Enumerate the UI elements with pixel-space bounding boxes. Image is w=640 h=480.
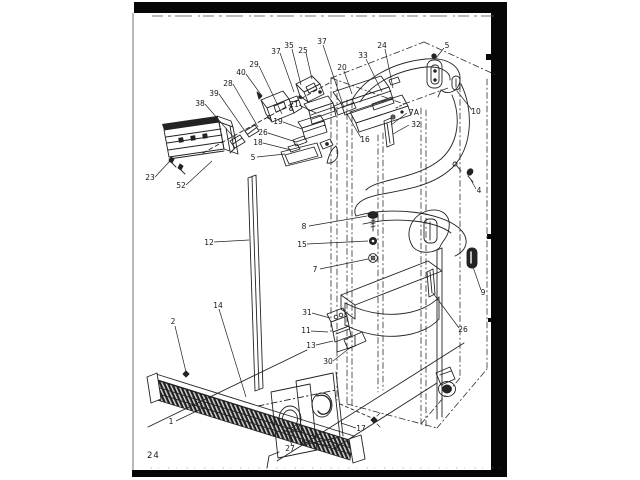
part-callout: 32 [411, 120, 421, 129]
part-callout: 11 [301, 326, 311, 335]
part-callout: 15 [297, 240, 307, 249]
drain-pan [341, 261, 442, 336]
scanned-manual-page: 38 39 28 40 29 37 35 25 37 23 52 21 19 2… [0, 0, 640, 480]
part-callout: 29 [249, 60, 259, 69]
part-callout: 28 [223, 79, 233, 88]
mounting-screw-set [368, 212, 378, 263]
part-callout: 17 [356, 424, 366, 433]
control-box [162, 116, 238, 159]
part-callout: 39 [209, 89, 219, 98]
part-callout: 5 [445, 41, 450, 50]
part-callout: 23 [145, 173, 155, 182]
part-callout: 37 [271, 47, 281, 56]
part-callout: 52 [176, 181, 186, 190]
part-callout: 33 [358, 51, 368, 60]
part-callout: 18 [253, 138, 263, 147]
hinge-and-fasteners [427, 54, 477, 268]
part-callout: 3 [334, 442, 339, 451]
valve-housing [409, 210, 449, 252]
part-callout: 20 [337, 63, 347, 72]
part-callout: 19 [273, 117, 283, 126]
part-callouts: 38 39 28 40 29 37 35 25 37 23 52 21 19 2… [145, 37, 485, 453]
part-callout: 2 [171, 317, 176, 326]
cabinet-outline [331, 42, 496, 428]
scan-right-bar [491, 2, 507, 476]
divider-panel [248, 175, 263, 391]
part-callout: 26 [458, 325, 468, 334]
part-callout: 21 [289, 100, 299, 109]
part-callout: 10 [471, 107, 481, 116]
part-callout: 26 [258, 128, 268, 137]
part-callout: 16 [360, 135, 370, 144]
exploded-parts-diagram: 38 39 28 40 29 37 35 25 37 23 52 21 19 2… [0, 0, 640, 480]
air-duct-boxes [333, 76, 411, 147]
part-callout: 4 [477, 186, 482, 195]
part-callout: 35 [284, 41, 294, 50]
caster-wheel [436, 367, 456, 397]
part-callout: 38 [195, 99, 205, 108]
part-callout: 30 [323, 357, 333, 366]
control-box-screws [169, 157, 185, 174]
part-callout: 9 [481, 288, 486, 297]
part-callout: 24 [377, 41, 387, 50]
part-callout: 1 [169, 417, 174, 426]
toe-grille [147, 371, 380, 463]
part-callout: 7A [409, 108, 420, 117]
page-number: 24 [147, 451, 160, 461]
part-callout: 37 [317, 37, 327, 46]
scan-bottom-bar [132, 470, 507, 477]
part-callout: 8 [302, 222, 307, 231]
support-bracket-assembly [327, 308, 366, 352]
part-callout: 25 [298, 46, 308, 55]
part-callout: 7 [313, 265, 318, 274]
part-callout: 27 [285, 444, 295, 453]
part-callout: 14 [213, 301, 223, 310]
part-callout: 31 [302, 308, 312, 317]
part-callout: 5 [251, 153, 256, 162]
scan-top-bar [134, 2, 491, 13]
part-callout: 12 [204, 238, 214, 247]
part-callout: 13 [306, 341, 316, 350]
part-callout: 40 [236, 68, 246, 77]
